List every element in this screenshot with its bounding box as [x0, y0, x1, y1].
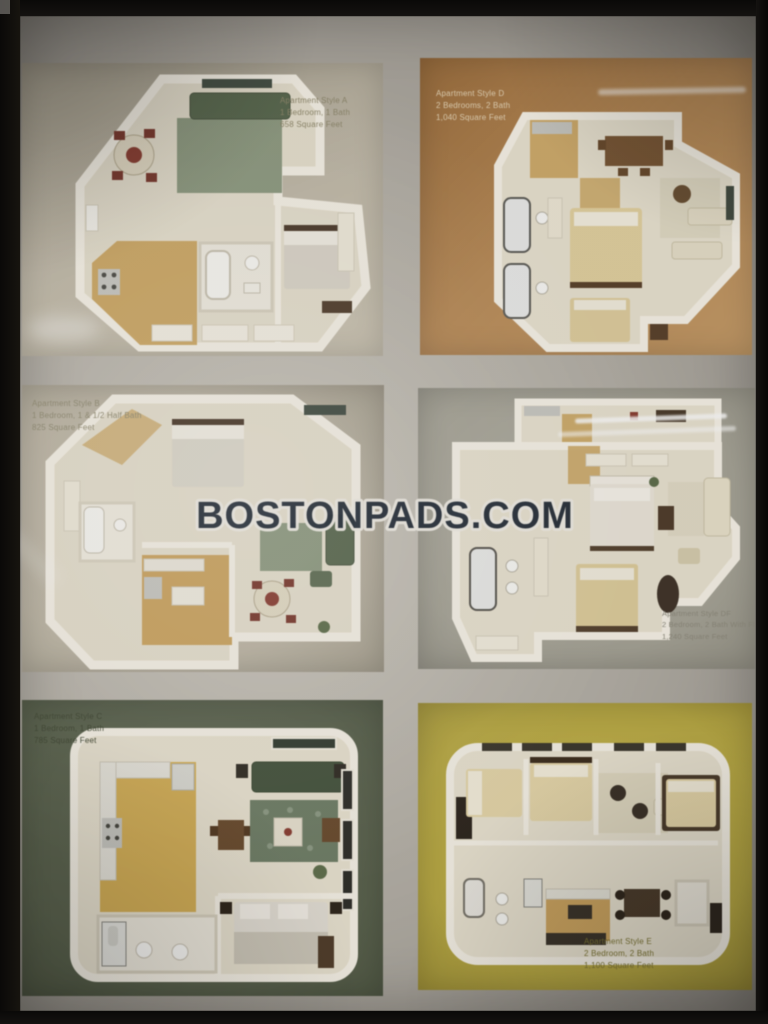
shelf [586, 454, 626, 466]
nightstand [220, 902, 232, 914]
bed-pillow [240, 904, 270, 919]
window-shutter [342, 770, 353, 810]
dresser [650, 324, 668, 340]
second-bed-pillow [574, 300, 626, 310]
window-band [482, 743, 512, 751]
bathtub [504, 198, 530, 252]
window-band [656, 743, 686, 751]
second-bed-pillows [580, 568, 634, 580]
stove [102, 818, 122, 848]
wall-art [726, 186, 734, 220]
caption-line: Apartment Style B [32, 398, 142, 410]
bathroom-sink [244, 283, 260, 293]
caption-line: 1 Bedroom, 1 & 1/2 Half Bath [32, 410, 142, 422]
green-sofa [190, 93, 290, 119]
caption-line: 1,240 Square Feet [662, 631, 755, 642]
bed-footboard [590, 546, 654, 551]
caption-line: Apartment Style C [34, 711, 104, 723]
caption-line: Apartment Style DF [662, 608, 755, 619]
flex-desk [656, 410, 686, 422]
bathtub [206, 251, 230, 299]
window-band [562, 743, 592, 751]
dining-chair [661, 890, 671, 900]
floorplan-tile-a: Apartment Style A 1 Bedroom, 1 Bath 658 … [22, 63, 383, 356]
caption-line: 1,100 Square Feet [584, 960, 654, 972]
stove [98, 269, 120, 295]
dining-chair [286, 615, 296, 623]
armchair [678, 548, 700, 564]
caption-line: 785 Square Feet [34, 735, 104, 747]
floorplan-c-caption: Apartment Style C 1 Bedroom, 1 Bath 785 … [34, 711, 104, 747]
caption-line: 1,040 Square Feet [436, 112, 510, 124]
dining-table [624, 889, 660, 917]
caption-line: 2 Bedroom, 2 Bath With Flex Space [662, 619, 755, 630]
bathtub [504, 264, 530, 318]
kitchen-counter [144, 559, 204, 571]
kitchen-island [172, 587, 204, 605]
armchair [610, 785, 626, 801]
dining-chair [144, 129, 155, 138]
dining-chair [640, 168, 650, 176]
armchair [632, 803, 648, 819]
dining-chair [112, 171, 123, 180]
caption-line: Apartment Style D [436, 88, 510, 100]
storage-cabinet [202, 325, 248, 341]
bed-pillows [574, 212, 638, 226]
frame-bottom-edge [0, 1011, 768, 1024]
second-bed-bench [576, 626, 638, 632]
bathroom [676, 881, 708, 925]
wall-art [304, 405, 346, 415]
floorplan-d-caption: Apartment Style D 2 Bedrooms, 2 Bath 1,0… [436, 88, 510, 124]
flex-counter [524, 406, 560, 416]
plant [649, 477, 659, 487]
bed-pillows [172, 425, 244, 439]
flex-accent [630, 412, 638, 420]
floorplan-tile-e: Apartment Style E 2 Bedroom, 2 Bath 1,10… [418, 703, 752, 990]
dining-chair [114, 131, 125, 140]
dining-chair [250, 613, 260, 621]
coffee-table [658, 506, 674, 530]
window [86, 205, 98, 231]
frame-left-edge [0, 0, 20, 1024]
shelf [632, 454, 668, 466]
plant [318, 621, 330, 633]
toilet [172, 944, 188, 960]
dining-table [218, 820, 244, 850]
watermark: BOSTONPADS.COM [190, 488, 580, 552]
bed-headboard [172, 419, 244, 425]
framed-floorplan-photo: Apartment Style A 1 Bedroom, 1 Bath 658 … [0, 0, 768, 1024]
dining-table [605, 136, 663, 166]
storage-cabinet [476, 636, 518, 650]
frame-corner-highlight [0, 0, 10, 14]
dining-chair [615, 890, 625, 900]
caption-line: 825 Square Feet [32, 422, 142, 434]
cream-sofa [688, 208, 732, 225]
dining-chair [252, 581, 262, 589]
bed-footboard [570, 282, 642, 288]
toilet [506, 560, 518, 572]
toilet [136, 942, 152, 958]
print-layer: Apartment Style A 1 Bedroom, 1 Bath 658 … [0, 0, 768, 1024]
storage-cabinet [254, 325, 294, 341]
bed-pillows [594, 488, 650, 501]
storage-cabinet [152, 325, 192, 341]
wall-art [272, 738, 336, 749]
floorplan-tile-d: Apartment Style D 2 Bedrooms, 2 Bath 1,0… [420, 58, 752, 355]
bed-pillow [278, 904, 308, 919]
bed-blanket [234, 932, 328, 964]
floorplan-tile-c: Apartment Style C 1 Bedroom, 1 Bath 785 … [22, 700, 383, 996]
caption-line: 658 Square Feet [280, 119, 350, 131]
floorplan-e-caption: Apartment Style E 2 Bedroom, 2 Bath 1,10… [584, 936, 654, 972]
caption-line: 1 Bedroom, 1 Bath [280, 107, 350, 119]
green-sofa [252, 762, 344, 792]
caption-line: Apartment Style A [280, 95, 350, 107]
dining-chair [615, 910, 625, 920]
dining-chair [661, 910, 671, 920]
kitchen-cabinets [546, 889, 610, 899]
caption-line: Apartment Style E [584, 936, 654, 948]
caption-line: 2 Bedrooms, 2 Bath [436, 100, 510, 112]
green-chair [310, 571, 332, 587]
frame-right-edge [756, 0, 768, 1024]
desk [322, 818, 340, 842]
dining-centerpiece [265, 592, 279, 606]
dining-chair [665, 140, 673, 150]
floorplan-df-caption: Apartment Style DF 2 Bedroom, 2 Bath Wit… [662, 608, 755, 642]
toilet [114, 519, 126, 531]
wall-art [202, 79, 272, 88]
dining-chair [598, 140, 606, 150]
closet [548, 198, 562, 238]
toilet [506, 582, 518, 594]
toilet [496, 913, 508, 925]
fridge [172, 764, 194, 790]
window-shutter [342, 870, 353, 910]
dining-chair [618, 168, 628, 176]
dresser [710, 903, 722, 933]
coffee-table [673, 185, 691, 203]
bathtub [84, 507, 104, 553]
toilet [536, 212, 548, 224]
window-band [614, 743, 644, 751]
floorplan-b-caption: Apartment Style B 1 Bedroom, 1 & 1/2 Hal… [32, 398, 142, 434]
cream-sofa [704, 478, 730, 536]
living-rug [177, 118, 282, 193]
nightstand [330, 902, 342, 914]
window-shutter [342, 820, 353, 860]
bed-pillows [668, 781, 714, 792]
stove [144, 577, 162, 599]
frame-top-edge [0, 0, 768, 16]
plant [313, 865, 327, 879]
hall-wood-floor [580, 178, 620, 208]
caption-line: 2 Bedroom, 2 Bath [584, 948, 654, 960]
watermark-text: BOSTONPADS.COM [196, 495, 574, 537]
flex-wood-floor [562, 414, 592, 442]
end-table [236, 764, 248, 778]
bathtub [464, 879, 484, 917]
caption-line: 1 Bedroom, 1 Bath [34, 723, 104, 735]
kitchen-island [568, 905, 592, 919]
window-band [522, 743, 552, 751]
desk [322, 301, 352, 313]
bed-pillow [468, 771, 482, 815]
toilet [245, 256, 259, 270]
dining-centerpiece [126, 147, 142, 163]
dining-chair [210, 826, 218, 836]
bed-headboard [530, 757, 592, 763]
closet [338, 213, 354, 271]
kitchen-counter [532, 122, 572, 134]
dining-chair [284, 579, 294, 587]
toilet [536, 282, 548, 294]
dresser [318, 936, 334, 968]
toilet [496, 893, 508, 905]
closet [64, 481, 80, 531]
table-accent [284, 828, 292, 836]
cream-loveseat [672, 242, 722, 259]
water-heater [108, 926, 118, 946]
floorplan-a-caption: Apartment Style A 1 Bedroom, 1 Bath 658 … [280, 95, 350, 131]
shower [524, 879, 542, 907]
dining-chair [146, 173, 157, 182]
bed-pillows [534, 765, 588, 777]
bathtub [470, 548, 496, 610]
